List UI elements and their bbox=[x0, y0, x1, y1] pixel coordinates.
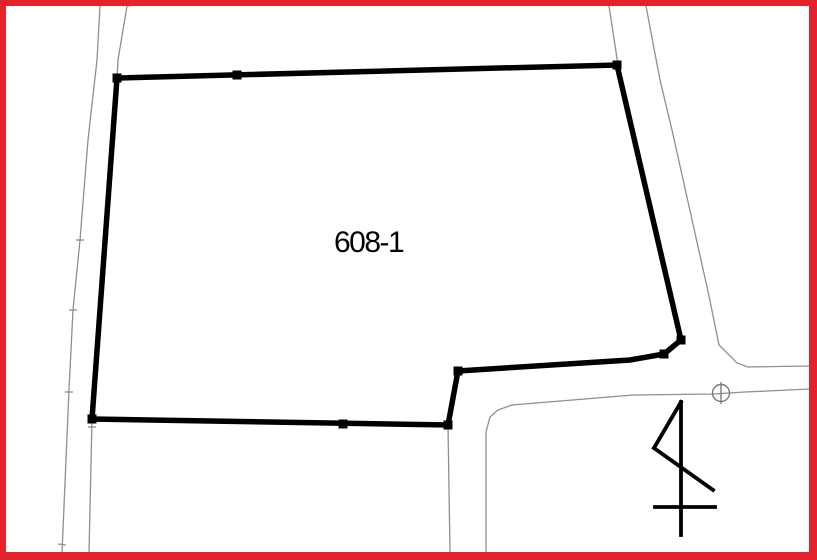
north-arrow-icon bbox=[654, 448, 713, 490]
parcel-vertex-marker bbox=[88, 415, 97, 424]
parcel-vertex-marker bbox=[613, 61, 622, 70]
boundary-tick-mark bbox=[123, 5, 131, 6]
left-road-inner-line bbox=[89, 6, 127, 553]
south-road-upper-line bbox=[486, 389, 810, 552]
parcel-number-label: 608-1 bbox=[334, 228, 403, 258]
parcel-vertex-marker bbox=[233, 71, 242, 80]
boundary-tick-mark bbox=[58, 544, 66, 545]
parcel-vertex-marker bbox=[339, 420, 348, 429]
cadastral-map-page: 608-1 bbox=[0, 0, 817, 560]
north-arrow-icon bbox=[654, 402, 681, 448]
map-canvas bbox=[0, 0, 817, 560]
parcel-vertex-marker bbox=[444, 421, 453, 430]
parcel-vertex-marker bbox=[660, 350, 669, 359]
right-road-outer-line bbox=[646, 6, 810, 367]
notch-boundary-line bbox=[448, 425, 450, 552]
left-road-outer-line bbox=[62, 6, 100, 553]
parcel-vertex-marker bbox=[454, 367, 463, 376]
parcel-vertex-marker bbox=[677, 336, 686, 345]
parcel-vertex-marker bbox=[113, 74, 122, 83]
